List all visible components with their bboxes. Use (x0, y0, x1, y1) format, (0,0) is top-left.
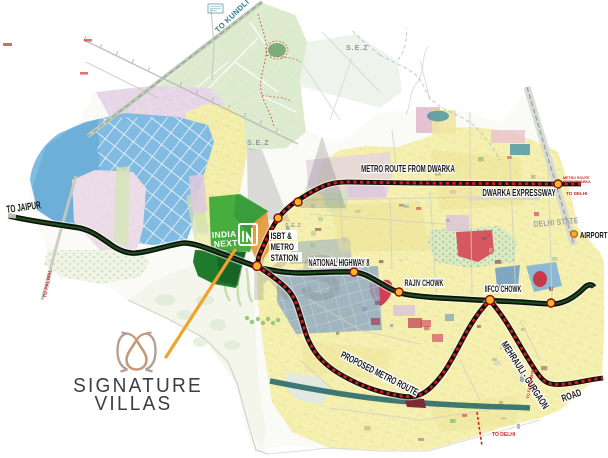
svg-text:FROM DWARKA: FROM DWARKA (563, 180, 591, 184)
svg-text:TO DELHI: TO DELHI (492, 432, 516, 438)
svg-text:RAJIV CHOWK: RAJIV CHOWK (405, 278, 444, 289)
svg-text:S.E.Z: S.E.Z (346, 45, 369, 52)
svg-text:TO DELHI: TO DELHI (566, 191, 587, 196)
svg-text:STATION: STATION (271, 253, 298, 264)
svg-text:S.E.Z: S.E.Z (247, 140, 270, 147)
svg-text:ISBT &: ISBT & (271, 231, 292, 242)
svg-text:METRO ROUTE FROM DWARKA: METRO ROUTE FROM DWARKA (361, 164, 455, 175)
svg-text:NATIONAL HIGHWAY 8: NATIONAL HIGHWAY 8 (309, 257, 370, 268)
svg-text:METRO: METRO (271, 242, 294, 253)
svg-text:VILLAS: VILLAS (94, 392, 172, 415)
svg-text:AIRPORT: AIRPORT (580, 230, 608, 240)
svg-text:S.E.Z: S.E.Z (285, 223, 301, 229)
svg-text:NEXT: NEXT (214, 238, 239, 249)
svg-text:IIFCO CHOWK: IIFCO CHOWK (485, 284, 522, 295)
svg-text:DWARKA EXPRESSWAY: DWARKA EXPRESSWAY (482, 186, 556, 198)
svg-text:TO PALWAL: TO PALWAL (42, 269, 54, 298)
